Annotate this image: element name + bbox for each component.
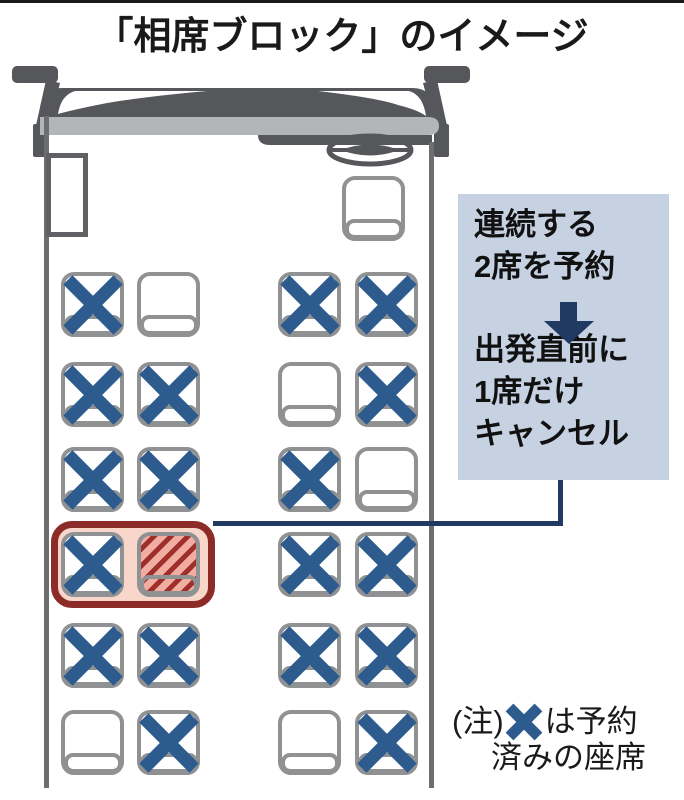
seat-r2-c4 bbox=[355, 362, 418, 427]
seat-base bbox=[140, 315, 198, 335]
seat-base bbox=[358, 575, 416, 595]
seat-r2-c3 bbox=[278, 362, 341, 427]
footnote: (注) は予約 済みの座席 bbox=[452, 704, 646, 776]
seat-r3-c1 bbox=[61, 447, 124, 512]
footnote-text: は予約 bbox=[545, 704, 638, 740]
seat-r1-c2 bbox=[137, 272, 200, 337]
seat-r5-c4 bbox=[355, 623, 418, 688]
footnote-prefix: (注) bbox=[452, 704, 504, 740]
seat-base bbox=[140, 575, 198, 595]
seat-r3-c4 bbox=[355, 447, 418, 512]
bus-door bbox=[46, 153, 88, 237]
seat-base bbox=[358, 490, 416, 510]
seat-r6-c1 bbox=[61, 710, 124, 775]
annotation-step1-line2: 2席を予約 bbox=[474, 246, 663, 288]
footnote-line1: (注) は予約 bbox=[452, 704, 646, 740]
seat-r6-c4 bbox=[355, 710, 418, 775]
seat-base bbox=[281, 490, 339, 510]
seat-base bbox=[281, 405, 339, 425]
annotation-box: 連続する 2席を予約 出発直前に 1席だけ キャンセル bbox=[458, 194, 669, 480]
driver-seat bbox=[342, 176, 405, 241]
down-arrow-icon bbox=[560, 302, 577, 321]
seat-base bbox=[64, 575, 122, 595]
footnote-line2: 済みの座席 bbox=[452, 740, 646, 776]
annotation-step1-line1: 連続する bbox=[474, 204, 663, 246]
seat-r6-c2 bbox=[137, 710, 200, 775]
seat-r5-c2 bbox=[137, 623, 200, 688]
seat-r5-c3 bbox=[278, 623, 341, 688]
seat-r3-c2 bbox=[137, 447, 200, 512]
seat-base bbox=[358, 753, 416, 773]
seat-base bbox=[358, 405, 416, 425]
seat-r4-c1 bbox=[61, 532, 124, 597]
seat-base bbox=[281, 753, 339, 773]
annotation-step2-line3: キャンセル bbox=[474, 413, 663, 455]
seat-base bbox=[281, 666, 339, 686]
annotation-step2-line2: 1席だけ bbox=[474, 371, 663, 413]
seat-base bbox=[140, 405, 198, 425]
seat-r4-c3 bbox=[278, 532, 341, 597]
reserved-x-icon bbox=[508, 706, 541, 739]
seat-base bbox=[140, 753, 198, 773]
seat-r1-c1 bbox=[61, 272, 124, 337]
connector-line-vertical bbox=[558, 478, 563, 526]
seat-base bbox=[358, 315, 416, 335]
seat-r4-c4 bbox=[355, 532, 418, 597]
dashboard-light-band bbox=[40, 117, 439, 135]
seat-base bbox=[281, 315, 339, 335]
seat-base bbox=[281, 575, 339, 595]
seat-r3-c3 bbox=[278, 447, 341, 512]
seat-base bbox=[140, 490, 198, 510]
seat-base bbox=[140, 666, 198, 686]
seat-base bbox=[64, 666, 122, 686]
seat-r1-c4 bbox=[355, 272, 418, 337]
seat-base bbox=[64, 490, 122, 510]
seat-r6-c3 bbox=[278, 710, 341, 775]
windshield bbox=[40, 88, 434, 118]
seat-base bbox=[358, 666, 416, 686]
seat-base bbox=[345, 219, 403, 239]
seat-r4-c2 bbox=[137, 532, 200, 597]
seat-r1-c3 bbox=[278, 272, 341, 337]
seat-base bbox=[64, 753, 122, 773]
connector-line-horizontal bbox=[213, 521, 563, 526]
seat-base bbox=[64, 405, 122, 425]
seat-r2-c2 bbox=[137, 362, 200, 427]
bus-right-wall bbox=[429, 142, 434, 788]
seat-base bbox=[64, 315, 122, 335]
seat-r5-c1 bbox=[61, 623, 124, 688]
seat-r2-c1 bbox=[61, 362, 124, 427]
infographic: 「相席ブロック」のイメージ bbox=[0, 0, 684, 800]
